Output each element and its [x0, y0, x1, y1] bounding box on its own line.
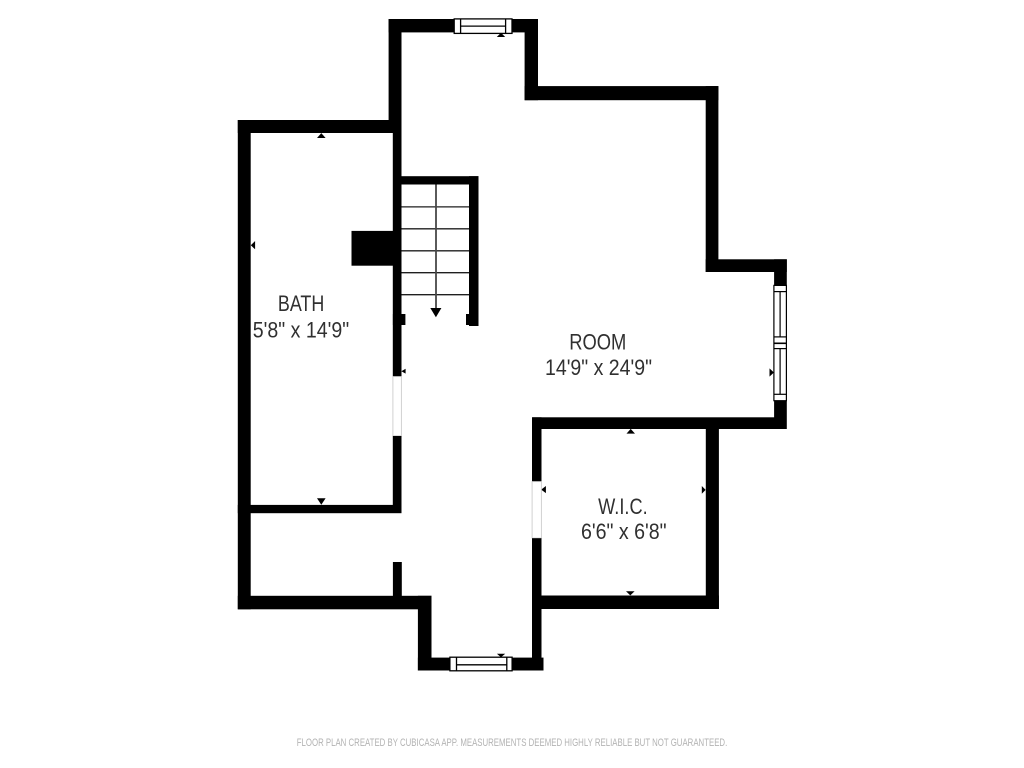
- svg-text:5'8" x 14'9": 5'8" x 14'9": [253, 318, 349, 343]
- svg-text:BATH: BATH: [278, 291, 324, 316]
- svg-text:6'6" x 6'8": 6'6" x 6'8": [581, 519, 667, 544]
- svg-text:14'9" x 24'9": 14'9" x 24'9": [545, 355, 652, 380]
- svg-text:FLOOR PLAN CREATED BY CUBICASA: FLOOR PLAN CREATED BY CUBICASA APP. MEAS…: [297, 737, 728, 749]
- svg-text:ROOM: ROOM: [569, 329, 626, 354]
- svg-text:W.I.C.: W.I.C.: [598, 494, 648, 519]
